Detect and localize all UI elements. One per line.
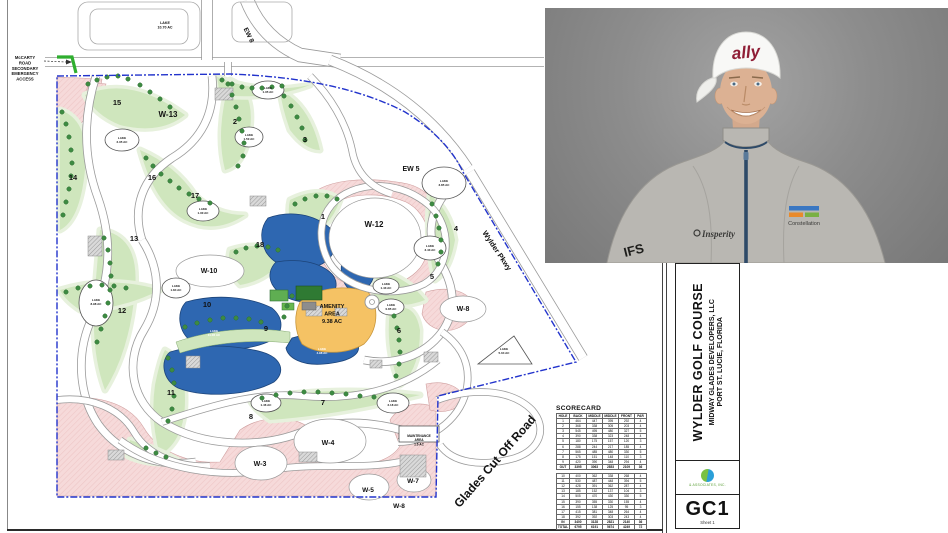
scorecard-cell: 3063 — [587, 464, 603, 469]
scorecard-back-nine-table: 1040036233826841153048744839451242839136… — [556, 473, 647, 530]
map-label-hole-9: 9 — [264, 324, 268, 333]
pupil-right — [757, 83, 760, 86]
firm-logo-icon — [701, 469, 714, 482]
scorecard-cell: 36 — [635, 464, 647, 469]
map-label-hole-12: 12 — [118, 306, 126, 315]
map-label-area-w10: W-10 — [201, 268, 218, 275]
project-location: PORT ST. LUCIE, FLORIDA — [717, 317, 724, 406]
scorecard-cell: 6795 — [570, 524, 587, 529]
map-label-road-ew5: EW 5 — [402, 166, 419, 173]
sheet-number-section: GC1 Sheet 1 — [676, 495, 739, 528]
sheet-label: Sheet 1 — [700, 520, 714, 525]
scorecard-cell: OUT — [557, 464, 570, 469]
map-label-hole-6: 6 — [397, 326, 401, 335]
sheet-right-border-outer — [662, 263, 663, 533]
map-label-hole-4: 4 — [454, 224, 459, 233]
scorecard-title: SCORECARD — [556, 405, 642, 412]
map-label-hole-1: 1 — [321, 212, 325, 221]
sheet-code: GC1 — [685, 499, 729, 519]
brow-right — [752, 77, 763, 78]
map-label-area-w12: W-12 — [365, 220, 385, 229]
scorecard-cell: 2853 — [603, 464, 619, 469]
pupil-left — [733, 83, 736, 86]
map-label-hole-5: 5 — [430, 272, 434, 281]
scorecard-cell: 2109 — [619, 464, 635, 469]
scorecard-cell: 5674 — [603, 524, 619, 529]
brow-left — [729, 77, 740, 78]
golfer-illustration: ally Insperity Constellation IFS — [545, 8, 948, 263]
map-label-mccarty-access-note: McCARTYROADSECONDARYEMERGENCYACCESS — [12, 55, 39, 82]
golfer-photo: ally Insperity Constellation IFS — [545, 8, 948, 263]
map-label-hole-15: 15 — [113, 98, 121, 107]
map-label-area-w4: W-4 — [322, 440, 335, 447]
firm-name: & ASSOCIATES, INC. — [689, 483, 726, 487]
cap-logo-text: ally — [731, 42, 762, 64]
map-label-hole-8: 8 — [249, 412, 253, 421]
svg-text:Constellation: Constellation — [788, 221, 820, 227]
map-label-hole-13: 13 — [130, 234, 138, 243]
map-label-area-w3: W-3 — [254, 461, 267, 468]
title-block-main: WYLDER GOLF COURSE MIDWAY GLADES DEVELOP… — [676, 264, 739, 461]
map-label-lake-10-70: LAKE10.70 AC — [157, 21, 172, 30]
scorecard-cell: 3395 — [570, 464, 587, 469]
scorecard-cell: TOTAL — [557, 524, 570, 529]
scorecard-header-cell: MIDDLE — [603, 414, 619, 419]
project-title: WYLDER GOLF COURSE — [691, 283, 705, 441]
map-label-hole-7: 7 — [321, 398, 325, 407]
scorecard-cell: 72 — [635, 524, 647, 529]
sheet-left-border — [7, 0, 8, 530]
map-label-area-w8-south: W-8 — [393, 503, 405, 510]
plan-sheet: W-13W-12W-10W-8W-4W-3W-5W-7W-8AMENITYARE… — [0, 0, 948, 533]
zipper-pull — [744, 152, 749, 160]
svg-text:Insperity: Insperity — [701, 229, 736, 239]
map-label-hole-11: 11 — [167, 388, 175, 397]
map-label-hole-17: 17 — [191, 191, 199, 200]
title-block: WYLDER GOLF COURSE MIDWAY GLADES DEVELOP… — [675, 263, 740, 529]
map-label-area-w7: W-7 — [407, 478, 419, 485]
roundabout — [365, 295, 379, 309]
map-label-hole-16: 16 — [148, 173, 156, 182]
firm-logo-section: & ASSOCIATES, INC. — [676, 461, 739, 495]
map-label-area-w8: W-8 — [457, 306, 470, 313]
scorecard-header-cell: MIDDLE — [587, 414, 603, 419]
scorecard-cell: 4249 — [619, 524, 635, 529]
map-label-hole-18: 18 — [256, 240, 264, 249]
map-label-hole-3: 3 — [303, 135, 307, 144]
map-label-hole-2: 2 — [233, 117, 237, 126]
map-label-area-w5: W-5 — [362, 487, 374, 494]
client-name: MIDWAY GLADES DEVELOPERS, LLC — [709, 299, 716, 425]
map-label-hole-10: 10 — [203, 300, 211, 309]
map-label-hole-14: 14 — [69, 173, 78, 182]
cap-brim — [697, 78, 717, 102]
scorecard: SCORECARD HOLEBACKMIDDLEMIDDLEFRONTPAR14… — [556, 405, 642, 533]
sheet-right-border-inner — [666, 263, 667, 533]
scorecard-cell: 6191 — [587, 524, 603, 529]
scorecard-front-nine-table: HOLEBACKMIDDLEMIDDLEFRONTPAR146444739529… — [556, 413, 647, 470]
map-label-area-w13: W-13 — [159, 110, 179, 119]
